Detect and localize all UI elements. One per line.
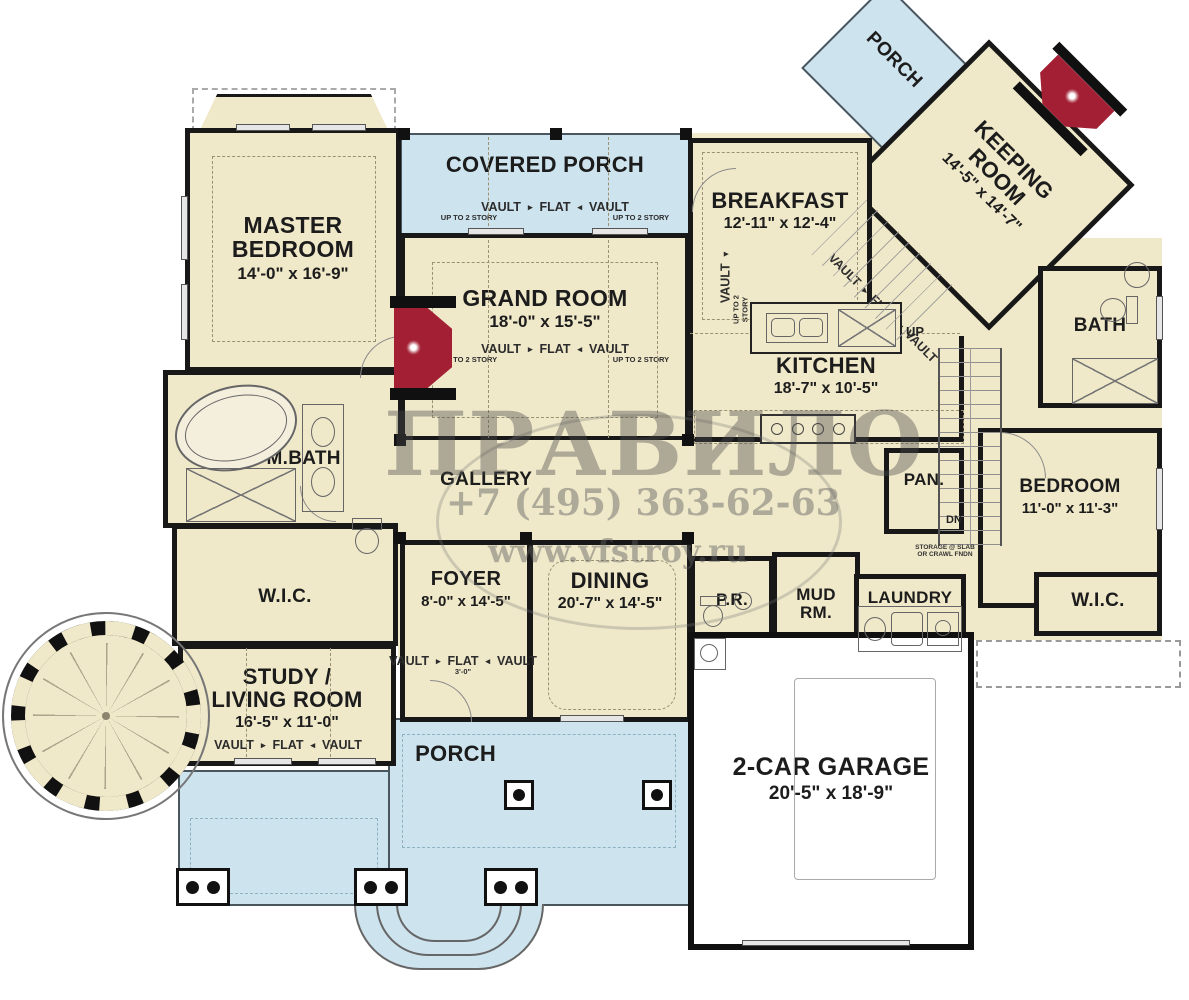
room-dimension: 18'-7" x 10'-5" — [693, 380, 959, 398]
room-dimension: 20'-5" x 18'-9" — [694, 783, 968, 805]
room-dimension: 20'-7" x 14'-5" — [533, 595, 687, 613]
room-label: PORCH — [390, 742, 521, 766]
room-label: GRAND ROOM — [405, 286, 685, 311]
room-label: COVERED PORCH — [402, 153, 688, 177]
rooms-layer: PORCHPORCHCOVERED PORCHKEEPING ROOM14'-5… — [0, 0, 1189, 1000]
room-porch-left — [178, 770, 390, 906]
floor-plan-canvas: PORCHPORCHCOVERED PORCHKEEPING ROOM14'-5… — [0, 0, 1189, 1000]
room-gallery: GALLERY — [398, 440, 692, 540]
room-label: W.I.C. — [1039, 591, 1157, 612]
room-breakfast: BREAKFAST12'-11" x 12'-4" — [688, 138, 872, 336]
room-label: 2-CAR GARAGE — [694, 754, 968, 781]
room-label: BREAKFAST — [693, 189, 867, 213]
room-dimension: 14'-5" x 14'-7" — [905, 117, 1056, 268]
room-dimension: 16'-5" x 11'-0" — [183, 714, 391, 732]
room-mbath: M.BATH — [163, 370, 403, 528]
room-dimension: 11'-0" x 11'-3" — [983, 500, 1157, 517]
room-label: W.I.C. — [177, 587, 393, 608]
room-dining: DINING20'-7" x 14'-5" — [528, 540, 692, 722]
room-dimension: 12'-11" x 12'-4" — [693, 215, 867, 233]
room-label: KEEPING ROOM — [919, 82, 1091, 254]
room-label: FOYER — [405, 569, 527, 591]
room-label: MASTER BEDROOM — [190, 213, 396, 263]
room-label: PAN. — [889, 471, 959, 489]
room-wic-right: W.I.C. — [1034, 572, 1162, 636]
room-study: STUDY / LIVING ROOM16'-5" x 11'-0" — [178, 644, 396, 766]
room-pr: P.R. — [690, 556, 774, 640]
room-label: PORCH — [845, 12, 942, 109]
room-bath: BATH — [1038, 266, 1162, 408]
room-label: KITCHEN — [693, 354, 959, 378]
room-foyer: FOYER8'-0" x 14'-5" — [400, 540, 532, 722]
room-wic-left: W.I.C. — [172, 524, 398, 646]
room-label: GALLERY — [398, 470, 574, 491]
room-kitchen: KITCHEN18'-7" x 10'-5" — [688, 336, 964, 442]
room-label: STUDY / LIVING ROOM — [183, 665, 391, 713]
room-porch-bottom: PORCH — [388, 718, 690, 906]
room-covered-porch: COVERED PORCH — [400, 133, 690, 235]
room-label: M.BATH — [209, 449, 398, 470]
room-label: LAUNDRY — [859, 589, 961, 607]
room-label: BATH — [1043, 316, 1157, 337]
room-grand: GRAND ROOM18'-0" x 15'-5" — [400, 233, 690, 441]
room-dimension: 8'-0" x 14'-5" — [405, 593, 527, 610]
room-pan: PAN. — [884, 448, 964, 534]
room-garage: 2-CAR GARAGE20'-5" x 18'-9" — [688, 632, 974, 950]
room-dimension: 18'-0" x 15'-5" — [405, 312, 685, 332]
room-label: P.R. — [695, 591, 769, 609]
room-label: MUD RM. — [777, 586, 855, 623]
room-label: BEDROOM — [983, 477, 1157, 498]
room-master: MASTER BEDROOM14'-0" x 16'-9" — [185, 128, 401, 372]
room-dimension: 14'-0" x 16'-9" — [190, 264, 396, 284]
room-label: DINING — [533, 569, 687, 593]
